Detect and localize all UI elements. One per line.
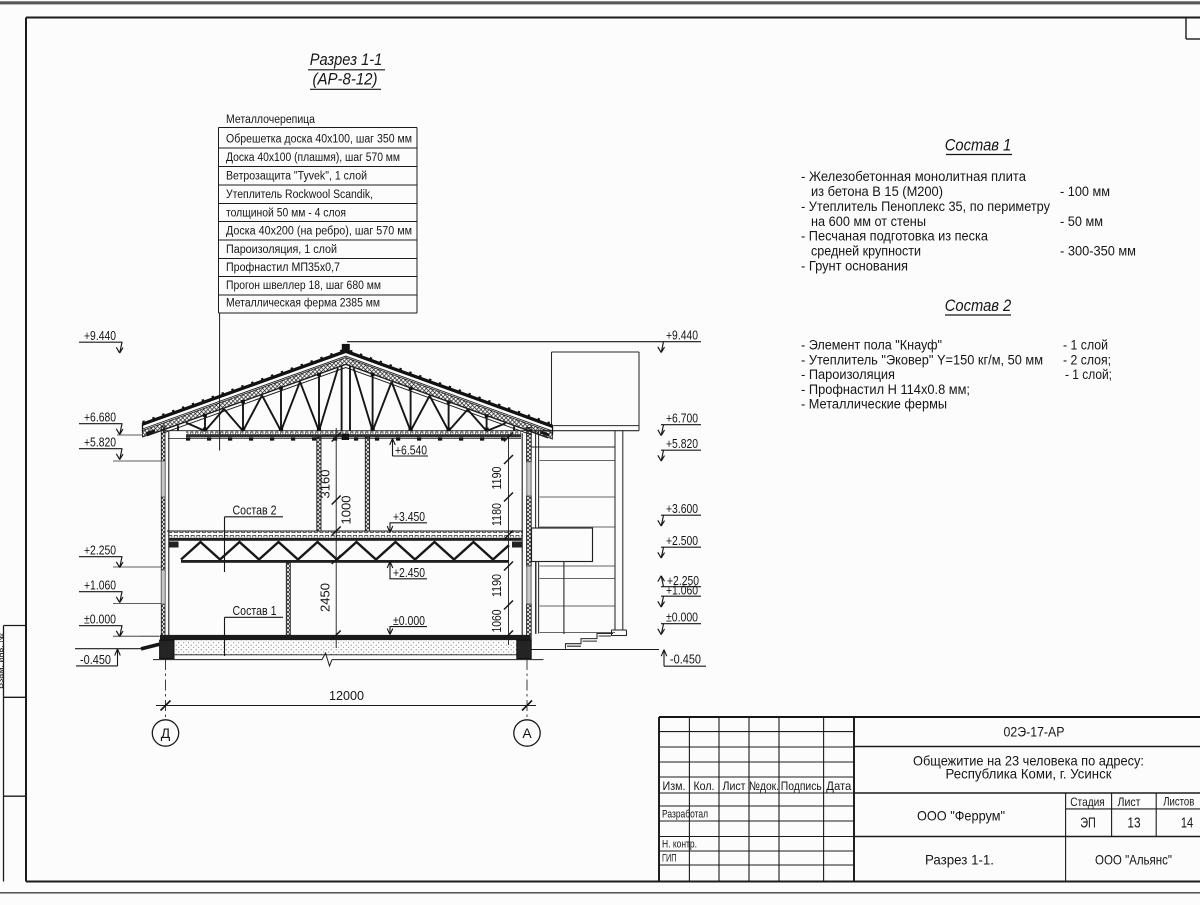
svg-text:-0.450: -0.450 — [670, 653, 701, 667]
svg-text:- 300-350 мм: - 300-350 мм — [1060, 244, 1136, 259]
svg-text:±0.000: ±0.000 — [393, 614, 425, 628]
svg-text:- Утеплитель "Эковер" Y=150 кг: - Утеплитель "Эковер" Y=150 кг/м, 50 мм — [801, 353, 1043, 368]
svg-text:+6.700: +6.700 — [666, 412, 698, 426]
svg-text:Доска 40х200 (на ребро), шаг 5: Доска 40х200 (на ребро), шаг 570 мм — [226, 226, 412, 238]
svg-text:Утеплитель Rockwool Scandik,: Утеплитель Rockwool Scandik, — [226, 189, 373, 201]
svg-text:ООО "Альянс": ООО "Альянс" — [1095, 852, 1172, 868]
svg-text:14: 14 — [1181, 816, 1193, 832]
svg-text:Изм.: Изм. — [663, 779, 686, 793]
svg-text:Лист: Лист — [1118, 795, 1142, 809]
svg-text:+5.820: +5.820 — [666, 437, 698, 451]
svg-text:средней крупности: средней крупности — [811, 244, 921, 259]
svg-text:- Утеплитель Пеноплекс 35, по: - Утеплитель Пеноплекс 35, по периметру — [801, 199, 1050, 214]
svg-text:+2.500: +2.500 — [666, 534, 698, 548]
svg-text:№док.: №док. — [749, 779, 779, 793]
svg-text:Обрешетка доска 40х100, шаг 35: Обрешетка доска 40х100, шаг 350 мм — [226, 134, 412, 146]
svg-text:- Профнастил Н 114х0.8 мм;: - Профнастил Н 114х0.8 мм; — [801, 382, 970, 397]
svg-text:13: 13 — [1127, 816, 1140, 832]
svg-text:- 100 мм: - 100 мм — [1060, 184, 1110, 199]
svg-text:-0.450: -0.450 — [80, 653, 111, 667]
svg-text:- Грунт основания: - Грунт основания — [801, 259, 908, 274]
svg-text:Республика Коми, г. Усинск: Республика Коми, г. Усинск — [946, 767, 1113, 782]
svg-text:±0.000: ±0.000 — [666, 611, 698, 625]
svg-text:1190: 1190 — [490, 574, 504, 597]
svg-text:Дата: Дата — [826, 779, 851, 793]
svg-text:1000: 1000 — [339, 496, 354, 525]
svg-text:- Железобетонная монолитная п: - Железобетонная монолитная плита — [801, 169, 1027, 184]
svg-text:3160: 3160 — [318, 470, 333, 499]
svg-text:- Элемент пола "Кнауф": - Элемент пола "Кнауф" — [801, 338, 942, 353]
svg-text:Разрез 1-1.: Разрез 1-1. — [925, 852, 994, 868]
svg-text:+9.440: +9.440 — [666, 329, 698, 343]
svg-text:Лист: Лист — [723, 779, 746, 793]
svg-text:Подпись: Подпись — [781, 779, 822, 793]
svg-text:(АР-8-12): (АР-8-12) — [313, 71, 378, 89]
svg-text:- 2 слоя;: - 2 слоя; — [1063, 353, 1111, 368]
svg-text:+1.060: +1.060 — [84, 579, 116, 593]
svg-text:Д: Д — [161, 725, 171, 741]
svg-text:Ветрозащита "Tyvek", 1 слой: Ветрозащита "Tyvek", 1 слой — [226, 171, 367, 183]
svg-text:+9.440: +9.440 — [84, 329, 116, 343]
svg-text:2450: 2450 — [318, 583, 333, 612]
svg-text:Н. контр.: Н. контр. — [662, 839, 697, 851]
svg-text:- Песчаная подготовка из песка: - Песчаная подготовка из песка — [801, 229, 989, 244]
svg-text:ГИП: ГИП — [662, 853, 677, 865]
svg-text:+3.600: +3.600 — [666, 502, 698, 516]
svg-text:+2.250: +2.250 — [84, 544, 116, 558]
svg-text:Металлическая ферма 2385 мм: Металлическая ферма 2385 мм — [226, 298, 380, 310]
svg-text:Состав 2: Состав 2 — [233, 503, 277, 518]
svg-text:- Пароизоляция: - Пароизоляция — [801, 367, 895, 382]
svg-text:+6.540: +6.540 — [395, 444, 427, 458]
svg-text:Состав 2: Состав 2 — [945, 297, 1012, 315]
svg-text:+1.060: +1.060 — [666, 584, 698, 598]
svg-text:ООО "Феррум": ООО "Феррум" — [917, 808, 1005, 824]
svg-text:- 50 мм: - 50 мм — [1060, 214, 1103, 229]
svg-text:толщиной 50 мм - 4 слоя: толщиной 50 мм - 4 слоя — [226, 208, 346, 220]
svg-text:1060: 1060 — [490, 609, 504, 632]
svg-text:Металлочерепица: Металлочерепица — [226, 114, 316, 126]
svg-text:Взам. инв. №: Взам. инв. № — [0, 633, 5, 689]
svg-text:+5.820: +5.820 — [84, 436, 116, 450]
svg-text:Пароизоляция, 1 слой: Пароизоляция, 1 слой — [226, 244, 337, 256]
svg-text:1180: 1180 — [490, 503, 504, 526]
svg-text:1190: 1190 — [490, 466, 504, 489]
svg-text:- 1 слой: - 1 слой — [1063, 338, 1108, 353]
svg-text:Разработал: Разработал — [662, 809, 708, 821]
svg-text:02Э-17-АР: 02Э-17-АР — [1004, 725, 1065, 741]
svg-text:Профнастил МП35х0,7: Профнастил МП35х0,7 — [226, 262, 340, 274]
svg-text:Состав 1: Состав 1 — [945, 137, 1012, 155]
svg-text:Доска 40х100 (плашмя), шаг 570: Доска 40х100 (плашмя), шаг 570 мм — [226, 152, 400, 164]
svg-text:+3.450: +3.450 — [393, 510, 425, 524]
svg-text:Стадия: Стадия — [1070, 795, 1105, 809]
svg-text:из бетона В 15 (М200): из бетона В 15 (М200) — [811, 184, 943, 199]
svg-text:- 1 слой;: - 1 слой; — [1065, 367, 1112, 382]
svg-text:А: А — [522, 725, 532, 741]
svg-text:- Металлические фермы: - Металлические фермы — [801, 397, 947, 412]
svg-text:Листов: Листов — [1163, 795, 1194, 809]
svg-text:+2.450: +2.450 — [393, 566, 425, 580]
svg-text:на 600 мм от стены: на 600 мм от стены — [811, 214, 926, 229]
svg-text:Прогон швеллер 18, шаг 680 мм: Прогон швеллер 18, шаг 680 мм — [226, 280, 381, 292]
svg-text:Состав 1: Состав 1 — [233, 603, 277, 618]
svg-text:Кол.: Кол. — [694, 779, 715, 793]
svg-text:Разрез 1-1: Разрез 1-1 — [310, 51, 383, 69]
svg-text:+6.680: +6.680 — [84, 411, 116, 425]
svg-text:±0.000: ±0.000 — [84, 613, 116, 627]
svg-text:ЭП: ЭП — [1080, 816, 1096, 832]
svg-text:12000: 12000 — [329, 688, 364, 703]
